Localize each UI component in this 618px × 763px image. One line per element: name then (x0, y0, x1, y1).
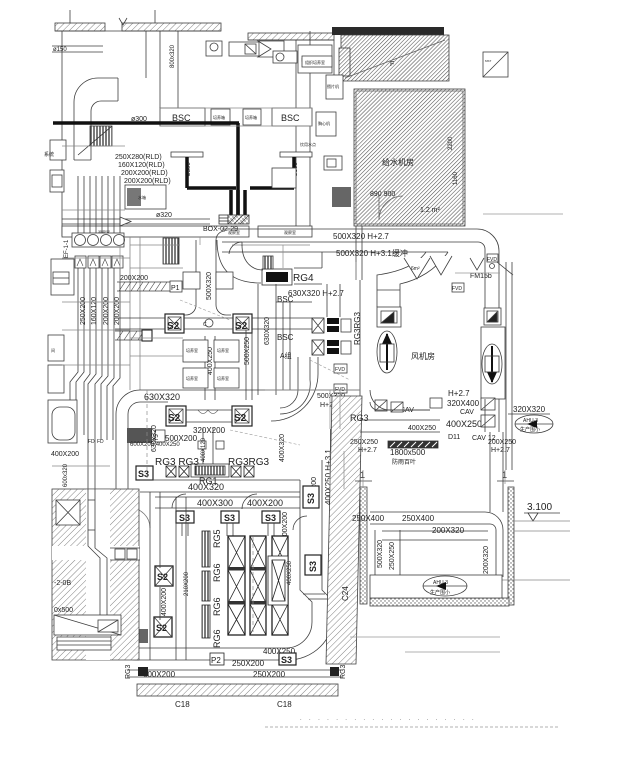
svg-text:1: 1 (360, 470, 365, 480)
svg-text:给水机房: 给水机房 (382, 157, 414, 167)
svg-text:600x320: 600x320 (63, 463, 69, 487)
svg-text:400X320: 400X320 (188, 482, 224, 492)
svg-text:培养箱: 培养箱 (245, 114, 257, 120)
svg-text:CAV: CAV (460, 409, 474, 416)
svg-text:320X400: 320X400 (447, 399, 480, 408)
svg-text:S3: S3 (179, 513, 190, 523)
svg-text:MST: MST (485, 59, 492, 63)
svg-text:500X320: 500X320 (377, 540, 384, 568)
svg-text:生产围小: 生产围小 (430, 589, 450, 596)
svg-text:组织培养室: 组织培养室 (305, 59, 325, 65)
svg-text:S3: S3 (308, 561, 318, 572)
svg-text:800x320: 800x320 (170, 44, 176, 68)
svg-text:风机房: 风机房 (411, 351, 435, 361)
svg-text:FVD: FVD (335, 367, 345, 373)
svg-text:250X250: 250X250 (389, 542, 396, 570)
svg-text:生产围小: 生产围小 (520, 426, 540, 433)
svg-text:ø150: ø150 (53, 47, 67, 53)
svg-text:S2: S2 (168, 413, 181, 424)
svg-text:培养室: 培养室 (217, 375, 229, 381)
svg-text:6m²: 6m² (411, 266, 420, 272)
svg-text:RG4: RG4 (293, 273, 314, 284)
svg-text:H+2.7: H+2.7 (491, 447, 510, 454)
svg-text:S3: S3 (281, 655, 292, 665)
svg-text:EF-1-1: EF-1-1 (64, 239, 70, 258)
svg-text:ø320: ø320 (156, 212, 172, 219)
svg-text:250X200: 250X200 (80, 297, 87, 325)
svg-text:250X200: 250X200 (232, 659, 265, 668)
svg-text:500X320 H+3.1缓冲: 500X320 H+3.1缓冲 (336, 248, 408, 258)
svg-text:0x500: 0x500 (54, 607, 73, 614)
svg-text:200X200: 200X200 (120, 275, 148, 282)
svg-text:250X250: 250X250 (350, 439, 378, 446)
svg-text:160X120: 160X120 (91, 297, 98, 325)
svg-text:250X400: 250X400 (352, 514, 385, 523)
svg-text:S2: S2 (156, 623, 167, 633)
svg-text:S3: S3 (306, 493, 316, 504)
svg-text:400X120: 400X120 (201, 437, 207, 462)
svg-text:500X320 H+2.7: 500X320 H+2.7 (333, 232, 389, 241)
svg-text:RG6: RG6 (212, 563, 222, 582)
svg-text:400X200: 400X200 (51, 451, 79, 458)
svg-text:C24: C24 (341, 586, 350, 601)
svg-text:400X200: 400X200 (161, 588, 168, 616)
svg-text:400X250: 400X250 (446, 419, 482, 429)
svg-text:400X300: 400X300 (197, 498, 233, 508)
svg-text:系统: 系统 (44, 151, 54, 158)
svg-text:250X200: 250X200 (253, 670, 286, 679)
svg-text:间: 间 (51, 347, 55, 353)
svg-text:1.2 m²: 1.2 m² (420, 207, 441, 214)
svg-text:2200: 2200 (448, 136, 454, 150)
svg-text:320X320: 320X320 (513, 405, 546, 414)
svg-text:培养室: 培养室 (217, 347, 229, 353)
svg-text:200X320: 200X320 (483, 546, 490, 574)
svg-text:C18: C18 (277, 700, 292, 709)
svg-text:400X320: 400X320 (279, 434, 286, 462)
svg-text:RG3 RG3: RG3 RG3 (155, 457, 199, 468)
svg-text:BSC: BSC (281, 113, 300, 123)
svg-text:160X120(RLD): 160X120(RLD) (118, 162, 165, 169)
svg-text:400X250: 400X250 (287, 560, 293, 585)
svg-text:200X320: 200X320 (432, 526, 465, 535)
svg-text:RG3: RG3 (125, 665, 132, 680)
svg-text:250X280(RLD): 250X280(RLD) (115, 154, 162, 161)
svg-text:F: F (390, 61, 394, 68)
svg-text:S3: S3 (138, 469, 149, 479)
svg-text:P1: P1 (171, 285, 180, 292)
svg-text:3.100: 3.100 (527, 502, 552, 513)
svg-text:CAV 12: CAV 12 (472, 435, 496, 442)
svg-text:培养箱: 培养箱 (213, 114, 225, 120)
svg-text:400X250: 400X250 (408, 425, 436, 432)
svg-text:BSC: BSC (277, 333, 294, 342)
svg-text:D11: D11 (448, 434, 460, 441)
svg-text:饮用水点: 饮用水点 (300, 141, 316, 147)
svg-text:200X200(RLD): 200X200(RLD) (124, 178, 171, 185)
svg-text:水箱: 水箱 (138, 194, 146, 200)
svg-text:1800x500: 1800x500 (390, 448, 426, 457)
svg-text:630X320: 630X320 (144, 392, 180, 402)
svg-text:RG3: RG3 (350, 413, 369, 423)
svg-text:防雨百叶: 防雨百叶 (392, 458, 416, 466)
svg-text:RG5: RG5 (212, 529, 222, 548)
svg-text:500X250: 500X250 (244, 337, 251, 365)
svg-text:培养室: 培养室 (186, 347, 198, 353)
svg-text:-2-0B: -2-0B (54, 580, 71, 587)
svg-text:FM15b: FM15b (470, 273, 492, 280)
svg-text:320X200: 320X200 (193, 426, 226, 435)
svg-text:FVD: FVD (487, 257, 497, 263)
svg-text:RG3RG3: RG3RG3 (353, 312, 362, 345)
svg-text:250X400: 250X400 (402, 514, 435, 523)
svg-text:210X200: 210X200 (184, 571, 190, 596)
svg-text:H+2.7: H+2.7 (448, 389, 470, 398)
svg-text:FVD: FVD (452, 286, 462, 292)
svg-text:FD: FD (88, 439, 95, 445)
svg-text:630X320: 630X320 (264, 317, 271, 345)
svg-text:RG6: RG6 (212, 629, 222, 648)
svg-text:200X200(RLD): 200X200(RLD) (121, 170, 168, 177)
svg-text:BSC: BSC (277, 295, 294, 304)
svg-text:H+2.7: H+2.7 (358, 447, 377, 454)
svg-text:200X200: 200X200 (114, 297, 121, 325)
svg-text:S2: S2 (157, 572, 168, 582)
svg-text:S2: S2 (234, 413, 247, 424)
svg-text:P2: P2 (211, 656, 221, 665)
svg-text:C18: C18 (175, 700, 190, 709)
svg-text:400X200: 400X200 (247, 498, 283, 508)
svg-text:FD: FD (97, 439, 104, 445)
svg-text:捌片机: 捌片机 (327, 83, 339, 89)
svg-text:600X200 400X250: 600X200 400X250 (130, 442, 180, 448)
svg-text:观察室: 观察室 (284, 229, 296, 235)
svg-text:500X320: 500X320 (206, 272, 213, 300)
svg-text:S3: S3 (224, 513, 235, 523)
svg-text:S3: S3 (265, 513, 276, 523)
svg-text:· · · · · · · · · · · · · · ·: · · · · · · · · · · · · · · · · · · · · (300, 717, 477, 723)
svg-text:A组: A组 (280, 351, 292, 360)
svg-text:200X200: 200X200 (103, 297, 110, 325)
svg-text:培养室: 培养室 (186, 375, 198, 381)
svg-text:RG3: RG3 (340, 665, 347, 680)
svg-text:S2: S2 (167, 321, 180, 332)
svg-text:890 900: 890 900 (370, 191, 395, 198)
svg-text:胸心机: 胸心机 (318, 120, 330, 126)
svg-text:C: C (203, 322, 207, 328)
svg-text:1160: 1160 (453, 171, 459, 185)
svg-text:630X320 H+2.7: 630X320 H+2.7 (288, 289, 344, 298)
svg-text:RG6: RG6 (212, 597, 222, 616)
